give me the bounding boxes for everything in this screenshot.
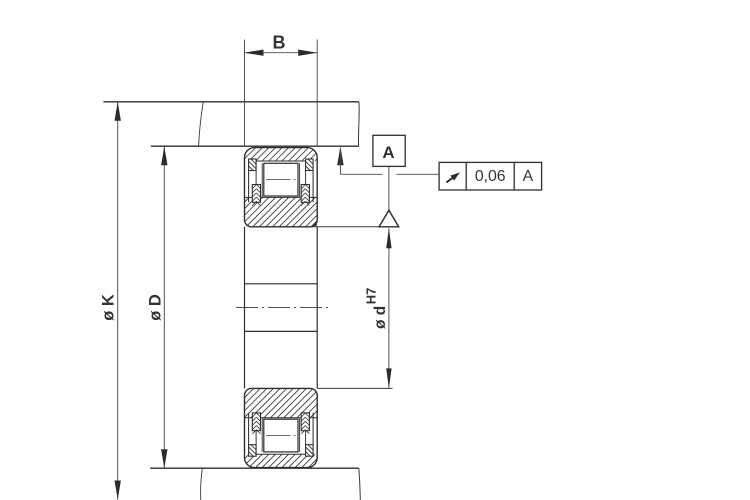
- svg-text:ø D: ø D: [146, 294, 164, 321]
- svg-text:A: A: [523, 168, 534, 185]
- svg-text:ø K: ø K: [100, 294, 118, 321]
- svg-text:B: B: [273, 32, 286, 52]
- svg-text:A: A: [382, 143, 394, 162]
- svg-text:0,06: 0,06: [475, 168, 506, 185]
